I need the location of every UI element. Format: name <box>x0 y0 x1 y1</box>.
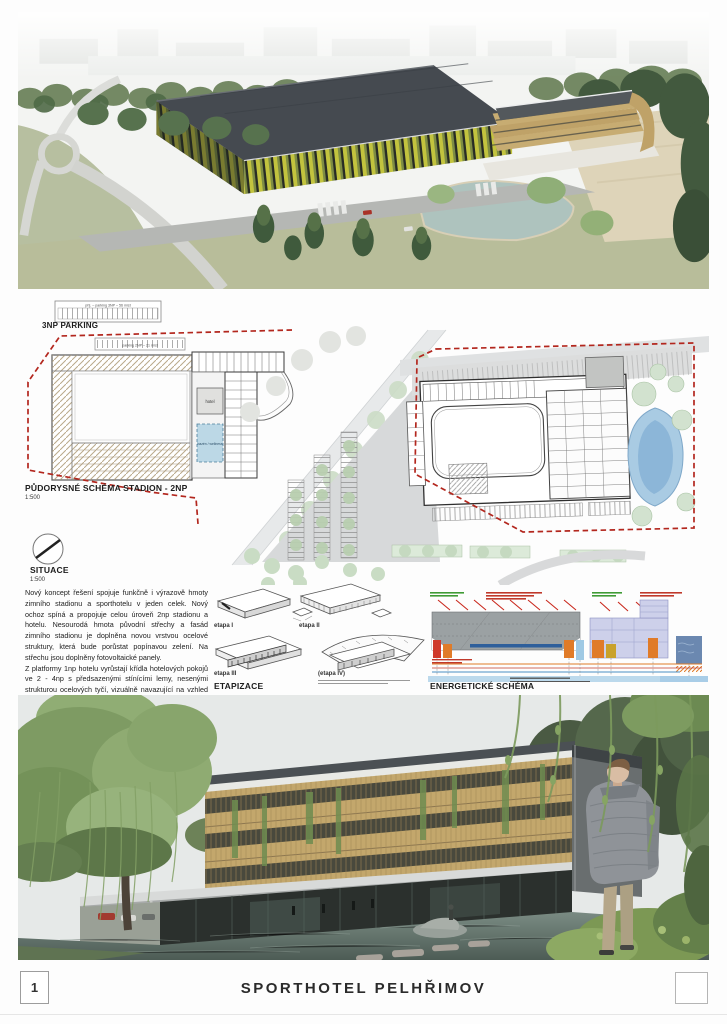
stadium-2np-plan: parking 2NP – 21 míst hotel bazén / well… <box>28 330 293 524</box>
energy-annotations <box>430 592 682 600</box>
situace-title: SITUACE <box>30 566 69 575</box>
ice-slab <box>470 644 562 648</box>
parking-2np-label: parking 2NP – 21 míst <box>122 344 158 348</box>
room-wellness-label: bazén / wellness <box>197 442 222 446</box>
hotel-rendering <box>18 695 709 960</box>
energy-diagram <box>428 590 710 682</box>
stadium-plan-scale: 1:500 <box>25 495 40 501</box>
etapa-3-label: etapa III <box>214 671 236 677</box>
presentation-board: příj. – parking 3NP – 56 míst parking 2N… <box>0 0 727 1024</box>
etapa-2-label: etapa II <box>299 623 320 629</box>
empty-footer-box <box>675 972 708 1004</box>
etapa-1-label: etapa I <box>214 623 233 629</box>
sheet-bottom-edge <box>0 1014 727 1015</box>
hotel-section <box>590 600 668 658</box>
north-compass <box>33 534 63 564</box>
etapa-4-label: (etapa IV) <box>318 671 345 677</box>
room-hotel-label: hotel <box>205 399 214 404</box>
energy-heading: ENERGETICKÉ SCHÉMA <box>430 682 534 691</box>
parking-3np-strip-label: příj. – parking 3NP – 56 míst <box>85 304 130 308</box>
concept-paragraph-1: Nový koncept řešení spojuje funkčně i vý… <box>25 588 208 664</box>
ice-rink <box>431 403 545 479</box>
energy-piping <box>432 658 702 676</box>
situace-scale: 1:500 <box>30 577 45 583</box>
plans-drawing: příj. – parking 3NP – 56 míst parking 2N… <box>18 295 709 585</box>
aerial-rendering <box>18 12 709 289</box>
ground-bands <box>428 659 708 682</box>
stadium-section <box>432 612 584 660</box>
parking-3np-strip: příj. – parking 3NP – 56 míst <box>55 301 161 322</box>
concept-text: Nový koncept řešení spojuje funkčně i vý… <box>25 588 208 707</box>
stadium-plan-title: PŮDORYSNÉ SCHÉMA STADION - 2NP <box>25 484 187 493</box>
solar-arrows <box>438 600 664 611</box>
retention-tank <box>676 636 702 664</box>
parking-3np-heading: 3NP PARKING <box>42 322 98 330</box>
project-title: SPORTHOTEL PELHŘIMOV <box>0 980 727 997</box>
etapizace-heading: ETAPIZACE <box>214 682 263 691</box>
site-plan <box>392 336 709 585</box>
